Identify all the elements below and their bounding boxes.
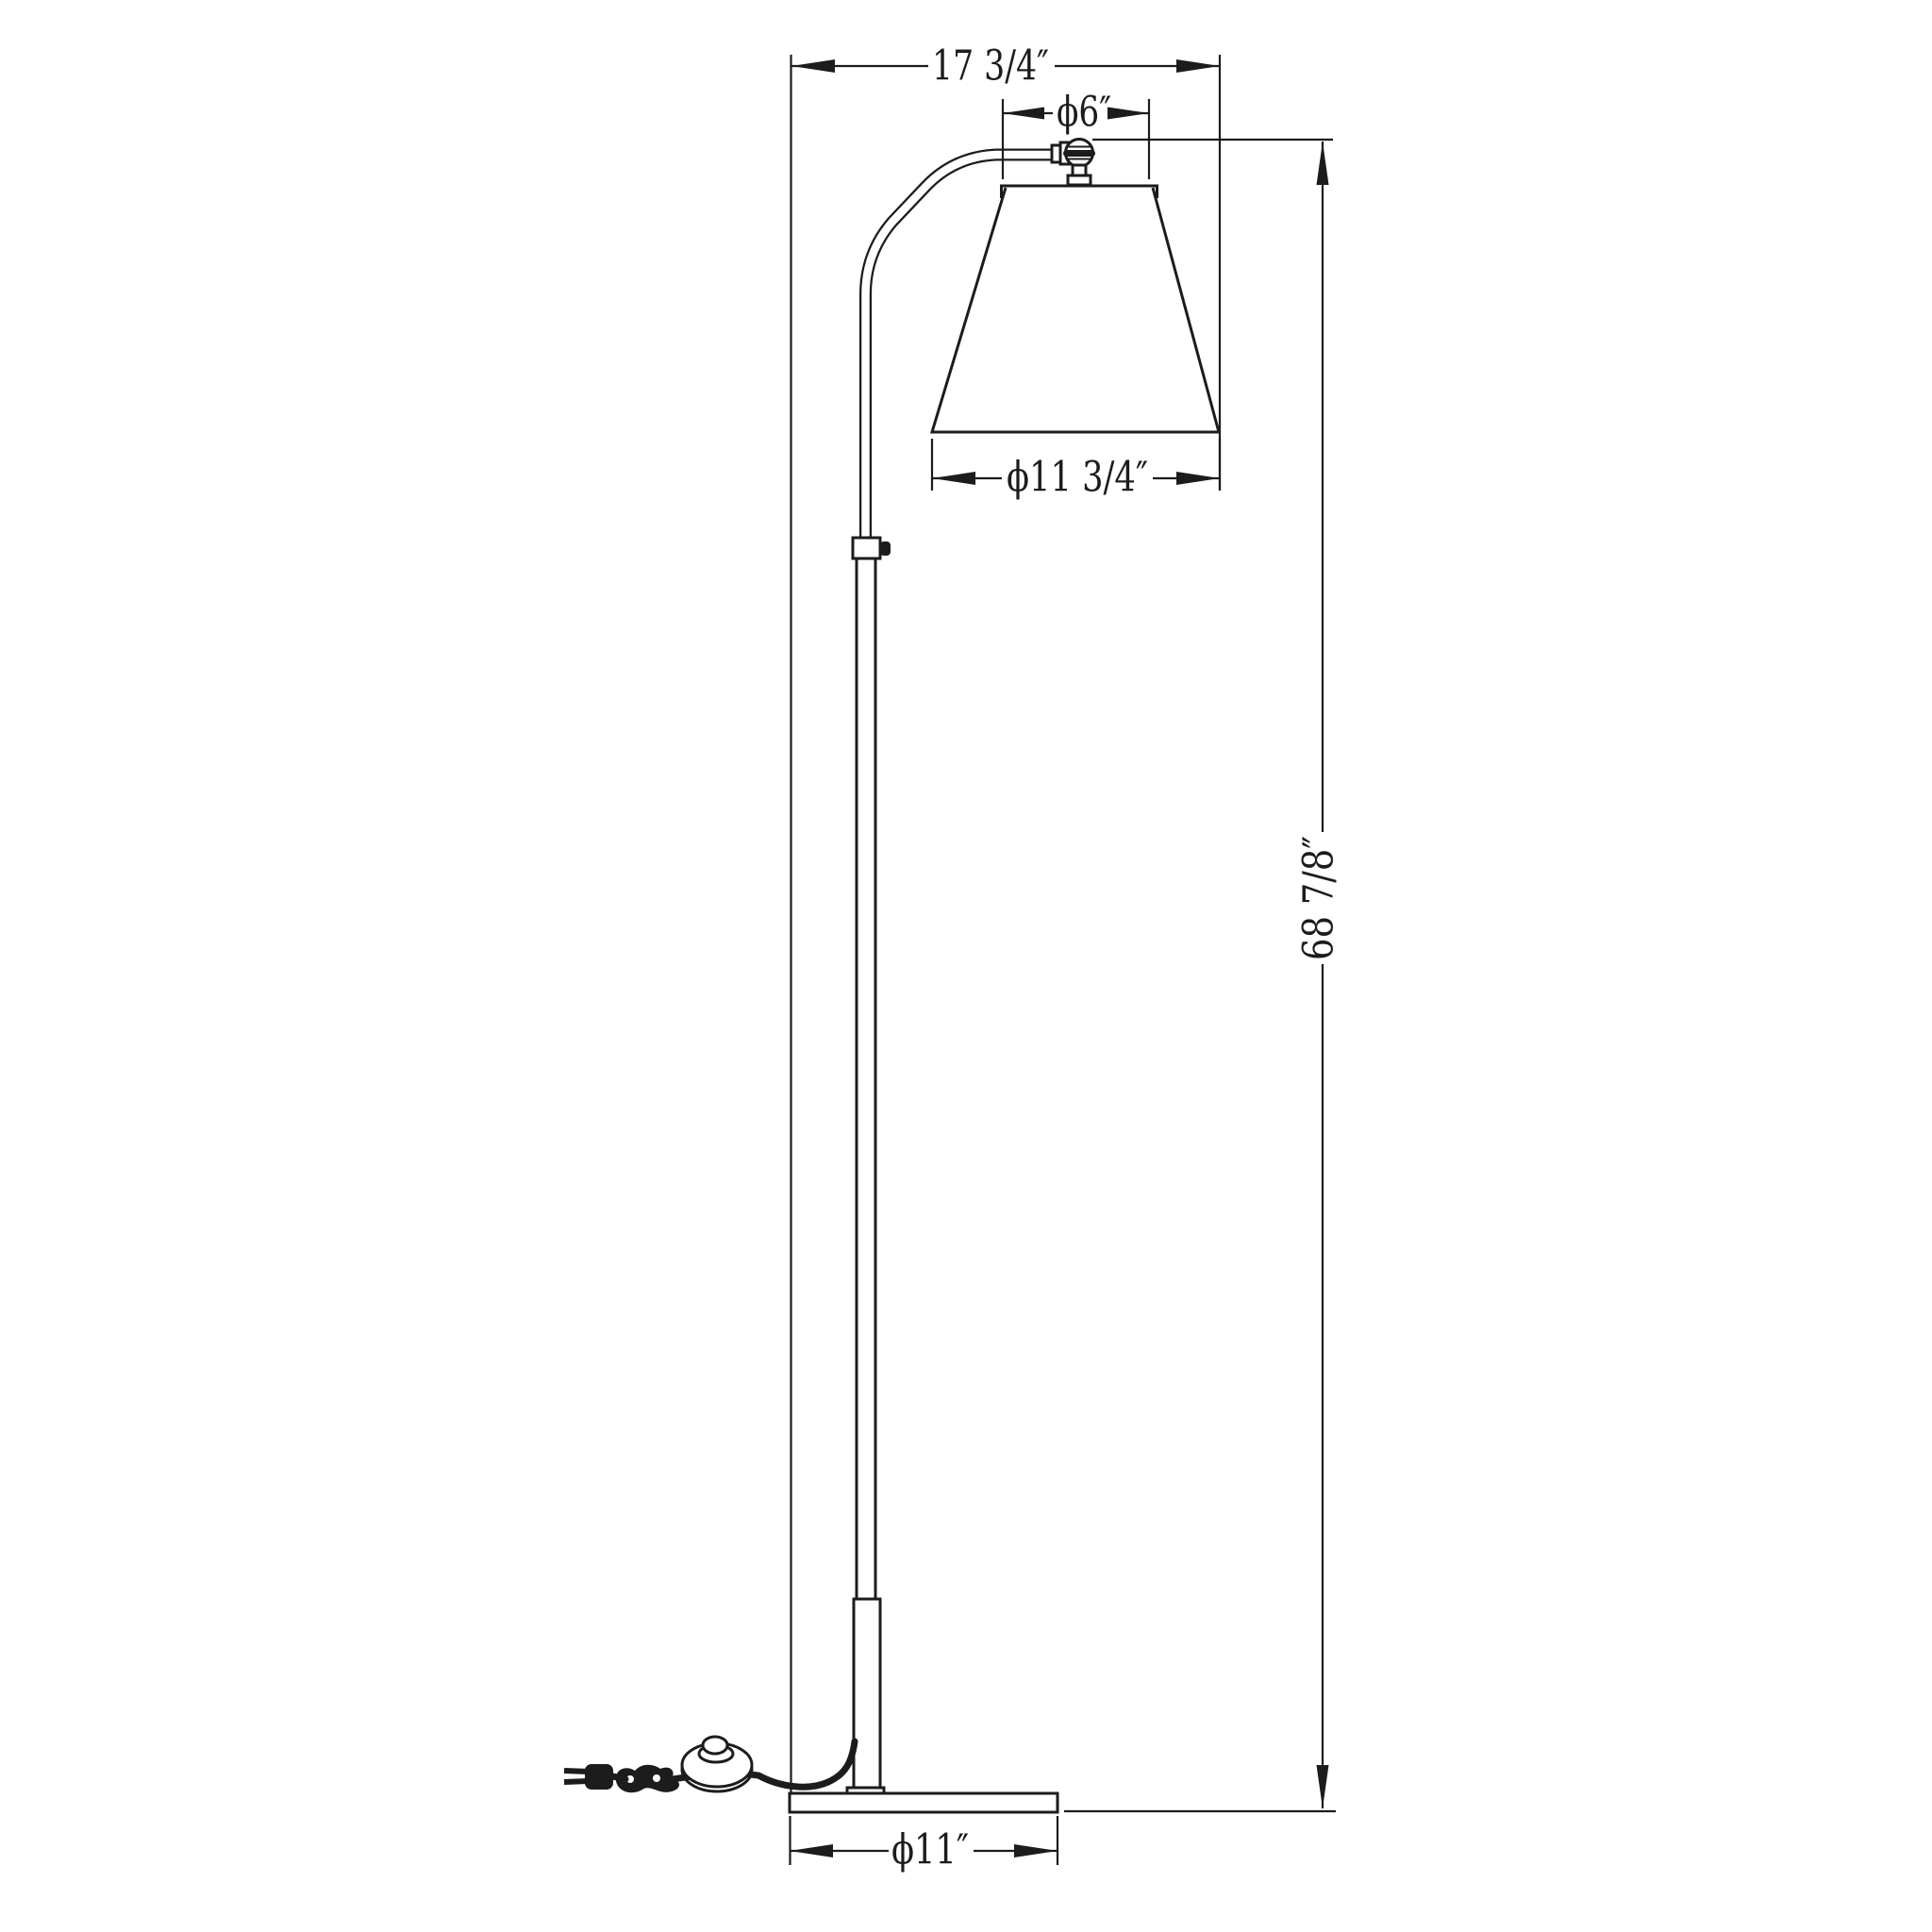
arrow-right: [1014, 1844, 1058, 1857]
socket-screw-slot: [1063, 150, 1095, 157]
arrow-down: [1317, 1765, 1329, 1808]
arrow-left: [932, 472, 975, 485]
height-adjust-clamp: [853, 538, 880, 558]
adjust-thumbscrew: [880, 541, 891, 556]
cord-plug-to-knot: [612, 1776, 625, 1779]
dimension-shade-bottom-diameter: ϕ11 3/4″: [932, 439, 1220, 502]
knot-gap-2: [653, 1774, 660, 1782]
shade-top-diameter-label: ϕ6″: [1057, 89, 1111, 137]
lamp-socket: [1052, 140, 1095, 186]
pole-bottom-sleeve: [854, 1599, 880, 1790]
shade-body: [932, 188, 1219, 432]
arrow-right: [1176, 472, 1220, 485]
base-diameter-label: ϕ11″: [891, 1826, 969, 1874]
plug-prong-top: [564, 1771, 589, 1772]
shade-bottom-diameter-label: ϕ11 3/4″: [1007, 454, 1148, 502]
pole-lower-tube: [857, 558, 875, 1599]
arrow-left: [1003, 108, 1044, 120]
arrow-left: [791, 59, 835, 73]
socket-flange: [1068, 175, 1091, 185]
lamp-base: [790, 1793, 1058, 1812]
lamp-pole: [847, 538, 891, 1794]
plug-body: [585, 1764, 613, 1790]
arrow-right: [1108, 108, 1149, 120]
lamp-shade: [932, 186, 1219, 432]
foot-switch-button: [703, 1737, 727, 1754]
floor-lamp-dimension-drawing: 17 3/4″ ϕ6″ 68 7/8″ ϕ11 3/4″: [0, 0, 1932, 1932]
dimension-base-diameter: ϕ11″: [790, 1816, 1058, 1874]
power-cord-assembly: [564, 1737, 855, 1792]
arrow-right: [1176, 59, 1220, 73]
arrow-up: [1317, 142, 1329, 185]
drawing-canvas: 17 3/4″ ϕ6″ 68 7/8″ ϕ11 3/4″: [0, 0, 1932, 1932]
plug-prong-bottom: [564, 1781, 589, 1782]
overall-height-label: 68 7/8″: [1295, 836, 1343, 960]
overall-width-label: 17 3/4″: [932, 42, 1049, 91]
arrow-left: [790, 1844, 833, 1857]
